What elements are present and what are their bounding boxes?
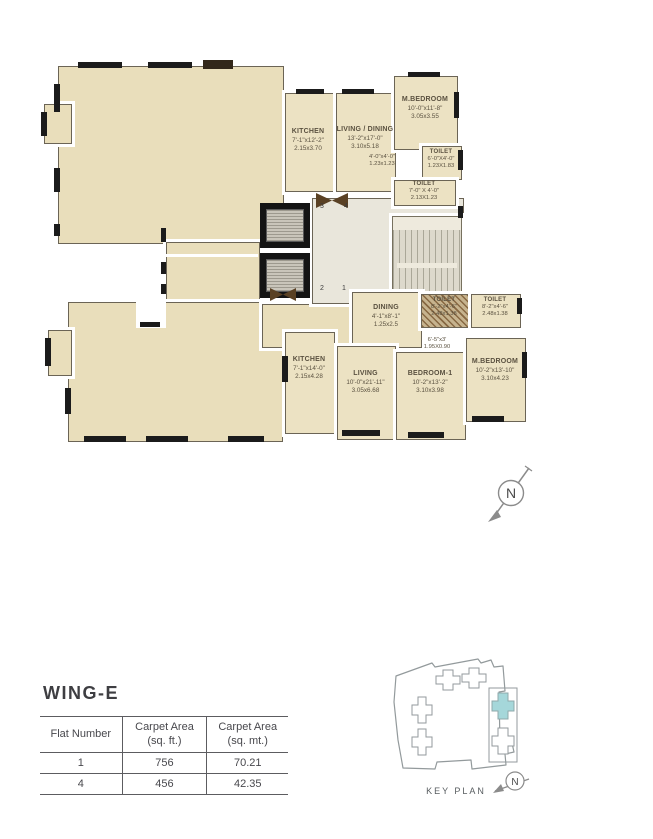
window-segment [408, 72, 440, 77]
stair-landing-rail [397, 263, 457, 268]
key-plan-north-arrow-icon: N [492, 764, 532, 800]
room-label-kitchen-upper: KITCHEN 7'-1"x12'-2" 2.15x3.70 [283, 128, 333, 152]
window-segment [228, 436, 264, 442]
room-label-toilet-upper-1: TOILET 6'-0"X4'-0" 1.23X1.83 [422, 149, 460, 169]
window-segment [161, 262, 166, 274]
cell-carpet-sqmt: 42.35 [207, 773, 288, 794]
north-arrow-icon: N [484, 462, 540, 526]
window-segment [78, 62, 122, 68]
window-segment [146, 436, 188, 442]
key-plan-label: KEY PLAN [406, 786, 506, 796]
table-row: 4 456 42.35 [40, 773, 288, 794]
window-segment [296, 89, 324, 94]
window-segment [54, 224, 60, 236]
flat-area-lower-left-bay [48, 330, 72, 376]
window-segment [140, 322, 160, 327]
building-footprint [412, 697, 432, 723]
elevator-car-icon [266, 209, 304, 242]
window-segment [65, 388, 71, 414]
table-header-row: Flat Number Carpet Area(sq. ft.) Carpet … [40, 717, 288, 753]
flat-corridor-left [166, 242, 260, 308]
window-segment [148, 62, 192, 68]
room-label-passage-upper: 4'-0"x4'-0" 1.23x1.23 [356, 154, 408, 167]
building-footprint [412, 729, 432, 755]
building-footprint [436, 670, 460, 690]
window-segment [54, 84, 60, 112]
room-kitchen-lower [285, 332, 335, 434]
wall-line [166, 254, 258, 257]
header-carpet-area-sqft: Carpet Area(sq. ft.) [122, 717, 207, 753]
staircase [392, 216, 462, 296]
room-label-toilet-upper-2: TOILET 7'-0" X 4'-0" 2.13X1.23 [394, 181, 454, 201]
flat-area-lower-left [68, 302, 283, 442]
wing-title: WING-E [43, 683, 119, 704]
window-segment [54, 168, 60, 192]
window-segment [161, 284, 166, 294]
flat-area-upper-left [58, 66, 284, 244]
highlighted-wing-e [492, 693, 514, 719]
window-segment [45, 338, 51, 366]
window-segment [161, 228, 166, 242]
building-footprint [492, 728, 514, 754]
flat-door-number: 3 [317, 203, 327, 210]
floor-plan-sheet: 3 4 2 1 KITCHEN 7'-1"x12'-2" 2.15x3.70 L… [0, 0, 653, 839]
window-segment [84, 436, 126, 442]
window-segment [41, 112, 47, 136]
window-segment [472, 416, 504, 422]
room-label-kitchen-lower: KITCHEN 7'-1"x14'-0" 2.15x4.28 [285, 356, 333, 380]
header-carpet-area-sqmt: Carpet Area(sq. mt.) [207, 717, 288, 753]
north-letter: N [511, 777, 518, 788]
cell-carpet-sqmt: 70.21 [207, 752, 288, 773]
flat-door-number: 2 [317, 285, 327, 292]
room-label-mbedroom-lower: M.BEDROOM 10'-2"x13'-10" 3.10x4.23 [466, 358, 524, 382]
cell-carpet-sqft: 456 [122, 773, 207, 794]
carpet-area-table: Flat Number Carpet Area(sq. ft.) Carpet … [40, 716, 288, 795]
cell-flat-number: 1 [40, 752, 122, 773]
table-row: 1 756 70.21 [40, 752, 288, 773]
cell-carpet-sqft: 756 [122, 752, 207, 773]
flat-door-number: 4 [341, 203, 351, 210]
room-label-mbedroom-upper: M.BEDROOM 10'-0"x11'-8" 3.05x3.55 [394, 96, 456, 120]
window-segment [458, 206, 463, 218]
flat-door-number: 1 [339, 285, 349, 292]
building-footprint [462, 668, 486, 688]
cell-flat-number: 4 [40, 773, 122, 794]
window-segment [342, 89, 374, 94]
north-letter: N [506, 485, 516, 501]
room-label-living-lower: LIVING 10'-0"x21'-11" 3.05x6.68 [337, 370, 394, 394]
room-label-toilet-lower-2: TOILET 8'-2"x4'-6" 2.48x1.38 [471, 297, 519, 317]
room-label-dining-lower: DINING 4'-1"x8'-1" 1.25x2.5 [352, 304, 420, 328]
door-marker [203, 60, 233, 69]
header-flat-number: Flat Number [40, 717, 122, 753]
window-segment [342, 430, 380, 436]
room-label-bedroom1-lower: BEDROOM-1 10'-2"x13'-2" 3.10x3.98 [396, 370, 464, 394]
room-label-passage-lower: 6'-5"x3' 1.95X0.90 [408, 337, 466, 350]
elevator-shaft-1 [260, 203, 310, 248]
room-label-living-dining-upper: LIVING / DINING 13'-2"x17'-0" 3.10x5.18 [335, 126, 395, 150]
room-label-toilet-lower-1: TOILET 8'-2"x4'-6" 2.48x1.38 [421, 297, 467, 317]
room-bedroom1-lower [396, 352, 466, 440]
window-segment [408, 432, 444, 438]
entrance-door-icon [270, 288, 296, 301]
